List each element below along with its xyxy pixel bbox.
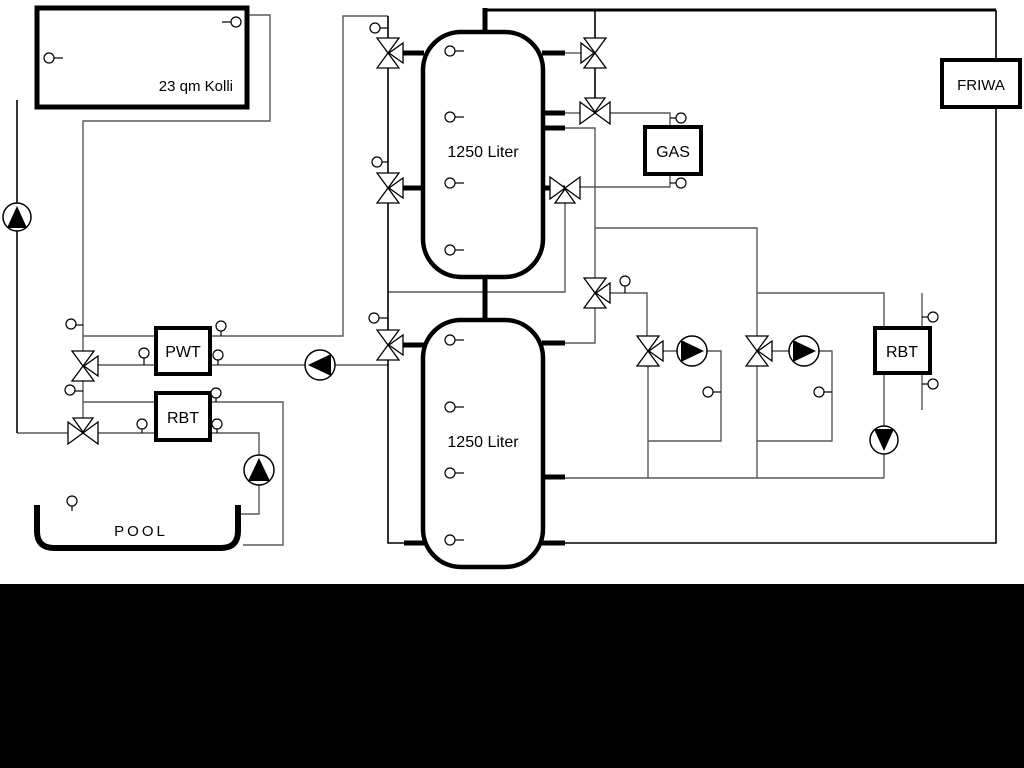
rbt-pool-label: RBT: [167, 410, 199, 427]
pwt-label: PWT: [165, 344, 201, 361]
pump-icon-charge: [305, 350, 335, 380]
pool-label: POOL: [114, 523, 168, 540]
pump-icon-pool: [244, 455, 274, 485]
collector-label: 23 qm Kolli: [159, 78, 233, 95]
bottom-black-bar: [0, 584, 1024, 768]
tank-bottom-label: 1250 Liter: [447, 434, 519, 451]
pump-icon-circuit1: [677, 336, 707, 366]
pump-icon-collector: [3, 203, 31, 231]
schematic-page: 23 qm Kolli PWT RBT GAS FRIWA RBT 1250 L…: [0, 0, 1024, 768]
gas-label: GAS: [656, 144, 690, 161]
friwa-label: FRIWA: [957, 77, 1005, 94]
rbt-right-label: RBT: [886, 344, 918, 361]
hydraulic-diagram: 23 qm Kolli PWT RBT GAS FRIWA RBT 1250 L…: [0, 0, 1024, 768]
pump-icon-circuit2: [789, 336, 819, 366]
tank-top-label: 1250 Liter: [447, 144, 519, 161]
pump-icon-rbt-right: [870, 426, 898, 454]
